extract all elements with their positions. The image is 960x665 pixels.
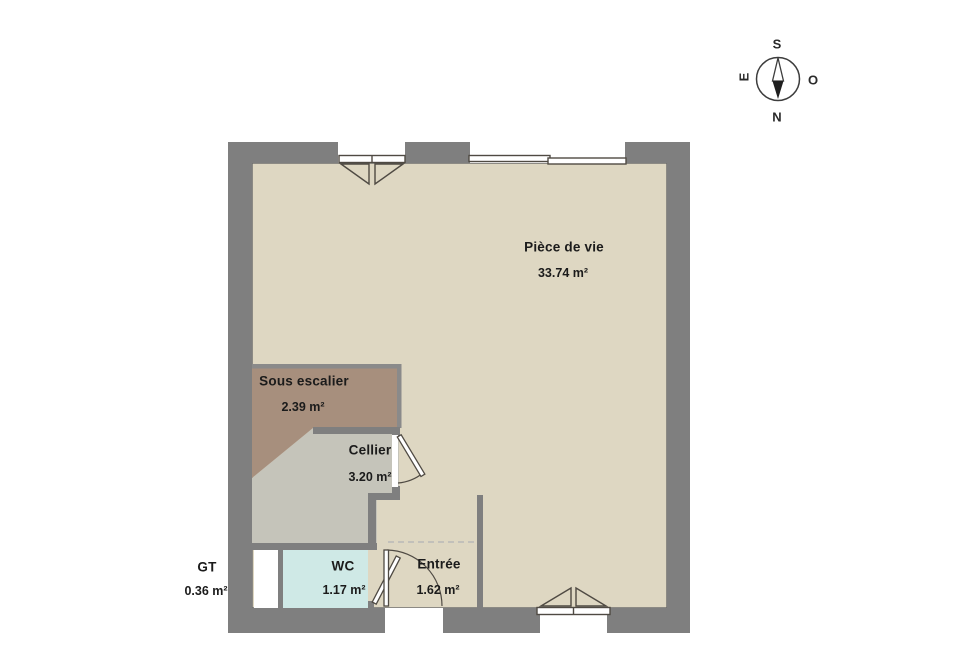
floor-wc: [283, 550, 368, 608]
wall-cellier-bottom: [252, 543, 377, 550]
cellier-door-opening: [392, 435, 398, 487]
wall-gt-wc-divider: [278, 550, 283, 608]
wall-sous-escalier-right: [397, 364, 402, 428]
entry-door-opening: [385, 608, 443, 633]
floor-plan-page: Pièce de vie 33.74 m² Sous escalier 2.39…: [0, 0, 960, 665]
compass-rose-icon: [757, 58, 800, 101]
gt-compartment: [254, 550, 278, 608]
wall-cellier-entree: [368, 493, 376, 545]
wall-left: [228, 142, 252, 633]
floor-plan-drawing: [0, 0, 960, 665]
wall-bottom: [228, 608, 690, 633]
wall-right: [667, 142, 690, 633]
wall-entree-partition: [477, 495, 483, 608]
wall-sous-escalier-bottom: [313, 427, 399, 434]
wall-sous-escalier-top: [252, 364, 401, 369]
